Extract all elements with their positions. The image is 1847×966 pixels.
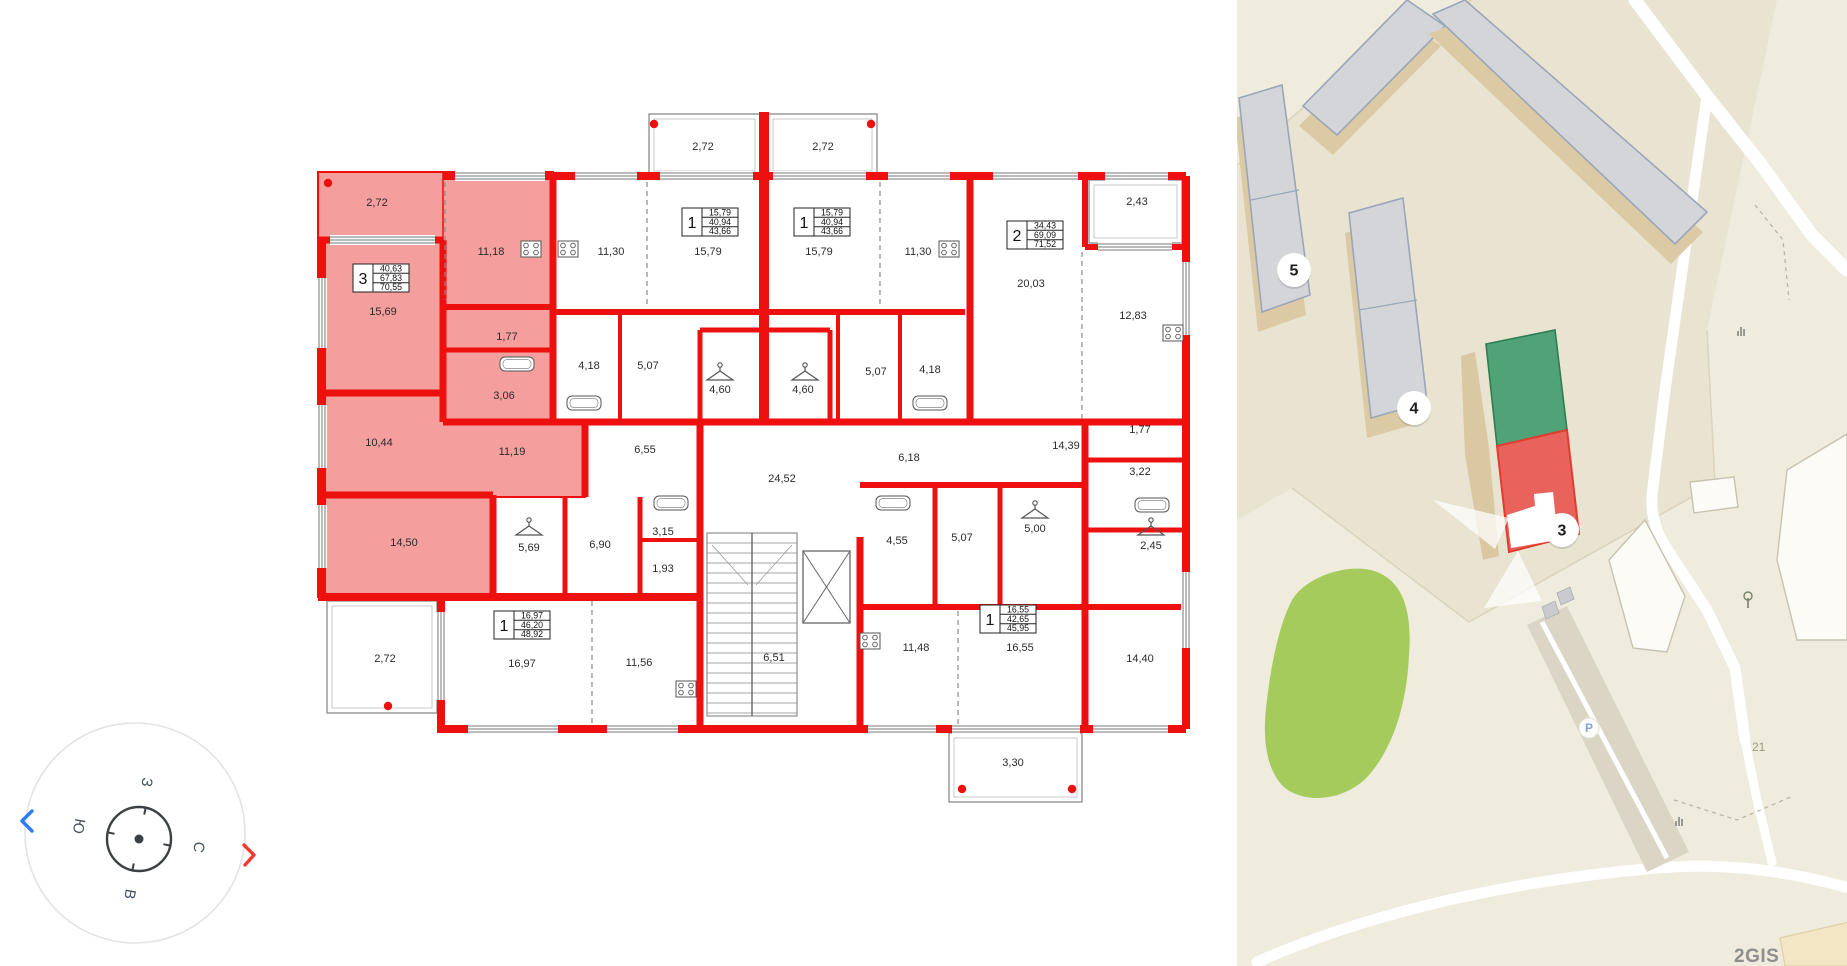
room-area-label: 1,77	[496, 331, 517, 343]
building-outline	[1690, 477, 1738, 513]
room-area-label: 11,30	[598, 246, 625, 258]
stove-icon	[1163, 325, 1183, 341]
map-marker-4[interactable]: 4	[1397, 391, 1431, 427]
bathtub-icon	[876, 496, 910, 510]
room-area-label: 16,55	[1006, 642, 1034, 654]
compass-direction-left: Ю	[69, 817, 88, 835]
room-area-label: 2,45	[1140, 540, 1161, 552]
balcony-dot	[867, 120, 875, 128]
room-area-label: 15,69	[369, 306, 397, 318]
bathtub-icon	[654, 496, 688, 510]
parking-icon: P	[1579, 718, 1599, 738]
room-area-label: 4,55	[886, 535, 907, 547]
apartment-area-value: 70,55	[380, 282, 402, 292]
stove-icon	[676, 681, 696, 697]
room-area-label: 4,60	[709, 384, 730, 396]
bathtub-icon	[567, 396, 601, 410]
room-area-label: 11,56	[626, 657, 653, 669]
room-area-label: 11,48	[903, 642, 930, 654]
room-area-label: 3,06	[493, 390, 514, 402]
bathtub-icon	[913, 396, 947, 410]
room-area-label: 2,72	[374, 653, 395, 665]
room-area-label: 6,18	[898, 452, 919, 464]
room-area-label: 2,72	[692, 141, 713, 153]
svg-text:3: 3	[1558, 523, 1567, 540]
building-section-other[interactable]	[1486, 330, 1567, 446]
apartment-area-value: 43,66	[821, 226, 843, 236]
apartment-rooms-count: 1	[688, 215, 697, 232]
room-area-label: 3,22	[1129, 466, 1150, 478]
room-area-label: 14,50	[390, 537, 418, 549]
room-area-label: 3,15	[652, 526, 673, 538]
balcony-outline	[1089, 180, 1182, 243]
room-area-label: 4,18	[578, 360, 599, 372]
room-area-label: 15,79	[694, 246, 722, 258]
room-area-label: 15,79	[805, 246, 833, 258]
stove-icon	[558, 241, 578, 257]
room-area-label: 6,90	[589, 539, 610, 551]
apartment-rooms-count: 1	[500, 618, 509, 635]
room-area-label: 14,39	[1052, 440, 1080, 452]
apartment-info-box[interactable]: 340,6367,8370,55	[353, 264, 409, 293]
room-area-label: 20,03	[1017, 278, 1045, 290]
compass: ЗЮСВ	[15, 708, 265, 958]
room-area-label: 12,83	[1119, 310, 1147, 322]
room-area-label: 5,07	[951, 532, 972, 544]
room-area-label: 4,18	[919, 364, 940, 376]
map-marker-5[interactable]: 5	[1277, 253, 1311, 289]
room-area-label: 5,07	[637, 360, 658, 372]
screenshot-root: 2,7211,1815,691,773,0610,4411,1914,502,7…	[0, 0, 1847, 966]
balcony-dot	[384, 702, 392, 710]
compass-arrow-right[interactable]	[244, 845, 254, 865]
room-area-label: 16,97	[508, 658, 536, 670]
apartment-rooms-count: 2	[1013, 228, 1022, 245]
room-area-label: 10,44	[365, 437, 393, 449]
room-area-label: 3,30	[1002, 757, 1023, 769]
compass-outer-ring	[25, 723, 245, 943]
stove-icon	[860, 633, 880, 649]
apartment-info-box[interactable]: 115,7940,9443,66	[794, 208, 850, 237]
room-area-label: 5,00	[1024, 523, 1045, 535]
apartment-area-value: 48,92	[521, 629, 543, 639]
balcony-dot	[1068, 785, 1076, 793]
apartment-rooms-count: 1	[986, 612, 995, 629]
apartment-info-box[interactable]: 116,5542,6545,95	[980, 605, 1036, 634]
2gis-logo[interactable]: 2GIS	[1734, 946, 1779, 966]
room-area-label: 11,30	[905, 246, 932, 258]
stove-icon	[521, 241, 541, 257]
apartment-rooms-count: 3	[359, 271, 368, 288]
room-area-label: 11,19	[499, 446, 526, 458]
bathtub-icon	[500, 357, 534, 371]
room-area-label: 2,72	[812, 141, 833, 153]
balcony-dot	[650, 120, 658, 128]
house-number: 21	[1752, 740, 1766, 754]
room-area-label: 4,60	[792, 384, 813, 396]
svg-text:5: 5	[1290, 263, 1299, 280]
stove-icon	[939, 241, 959, 257]
apartment-rooms-count: 1	[800, 215, 809, 232]
svg-text:P: P	[1585, 721, 1593, 735]
bathtub-icon	[1135, 498, 1169, 512]
apartment-area-value: 71,52	[1034, 239, 1056, 249]
room-area-label: 2,72	[366, 197, 387, 209]
apartment-area-value: 43,66	[709, 226, 731, 236]
room-area-label: 14,40	[1126, 653, 1154, 665]
apartment-info-box[interactable]: 234,4369,0971,52	[1007, 221, 1063, 250]
balcony-dot	[958, 785, 966, 793]
map[interactable]: 543 P 21 2GIS	[1237, 0, 1847, 966]
room-area-label: 2,43	[1126, 196, 1147, 208]
room-area-label: 6,55	[634, 444, 655, 456]
balcony-dot	[324, 179, 332, 187]
room-area-label: 5,07	[865, 366, 886, 378]
apartment-info-box[interactable]: 115,7940,9443,66	[682, 208, 738, 237]
room-area-label: 24,52	[768, 473, 796, 485]
room-area-label: 6,51	[763, 652, 784, 664]
apartment-area-value: 45,95	[1007, 623, 1029, 633]
room-area-label: 5,69	[518, 542, 539, 554]
room-area-label: 1,77	[1129, 424, 1150, 436]
room-area-label: 1,93	[652, 563, 673, 575]
apartment-info-box[interactable]: 116,9746,2048,92	[494, 611, 550, 640]
svg-text:4: 4	[1410, 401, 1419, 418]
room-area-label: 11,18	[478, 246, 505, 258]
